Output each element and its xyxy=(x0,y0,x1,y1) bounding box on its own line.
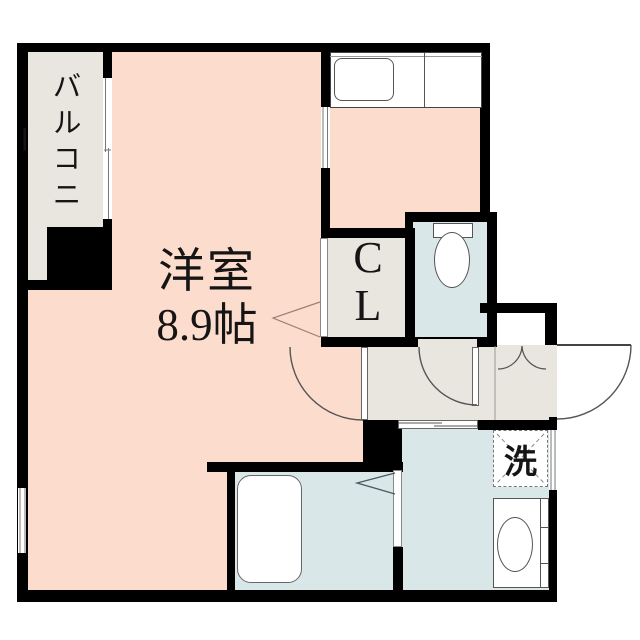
partition-window xyxy=(321,107,330,168)
vanity-shelf-line2 xyxy=(540,563,549,564)
closet-wall-bottom xyxy=(321,337,415,347)
vanity-shelf-line1 xyxy=(540,527,549,528)
balcony-window xyxy=(103,78,112,219)
toilet-wall-left xyxy=(405,212,413,347)
toilet-bowl xyxy=(434,232,470,288)
wall-bottom xyxy=(17,590,557,602)
room-size-text: 8.9帖 xyxy=(140,299,274,352)
room-side-window xyxy=(18,488,26,553)
hall-corner-block xyxy=(363,420,402,468)
toilet-wall-right xyxy=(487,212,497,347)
bathroom-wall-top xyxy=(207,462,403,472)
washroom-window xyxy=(549,430,557,490)
closet-folding-door-panel xyxy=(320,238,328,337)
toilet-swing-door-leaf xyxy=(472,347,479,406)
floor-plan: バルコニー 洋室 8.9帖 C L 洗 xyxy=(0,0,640,640)
entrance-door-arc xyxy=(557,345,631,419)
room-swing-door-leaf xyxy=(361,347,368,420)
sliding-door-panel xyxy=(398,420,478,429)
closet-letter-c: C xyxy=(330,234,406,282)
kitchen-partition-lower xyxy=(321,168,330,232)
balcony-label: バルコニー xyxy=(47,54,85,232)
hallway-floor xyxy=(368,345,549,420)
bathroom-divider-wall xyxy=(393,547,403,590)
folding-bath-door-panel xyxy=(393,470,402,547)
bathtub xyxy=(237,475,302,583)
wall-top xyxy=(17,43,490,52)
washroom-wall-top xyxy=(478,420,557,430)
balcony-end-wall xyxy=(28,280,47,290)
balcony-pillar-block xyxy=(47,227,112,290)
kitchen-partition-upper xyxy=(321,43,330,107)
kitchen-sink xyxy=(334,58,394,101)
entrance-doorway-gap xyxy=(549,345,557,417)
bathroom-wall-left xyxy=(227,462,235,590)
laundry-label: 洗 xyxy=(493,430,548,487)
storage-wall-right xyxy=(545,310,557,345)
closet-label: C L xyxy=(330,234,406,330)
balcony-window-wall-top xyxy=(103,52,112,78)
kitchen-counter-backline xyxy=(330,56,482,57)
toilet-door-opening xyxy=(418,339,477,347)
entrance-storage-floor xyxy=(497,313,545,345)
kitchen-counter-divider xyxy=(424,53,425,107)
washbasin-bowl xyxy=(497,517,533,572)
room-name-text: 洋室 xyxy=(140,246,274,299)
main-room-label: 洋室 8.9帖 xyxy=(140,246,274,352)
closet-letter-l: L xyxy=(330,282,406,330)
vanity-shelf-divider xyxy=(540,498,541,588)
toilet-wall-top xyxy=(405,212,497,222)
